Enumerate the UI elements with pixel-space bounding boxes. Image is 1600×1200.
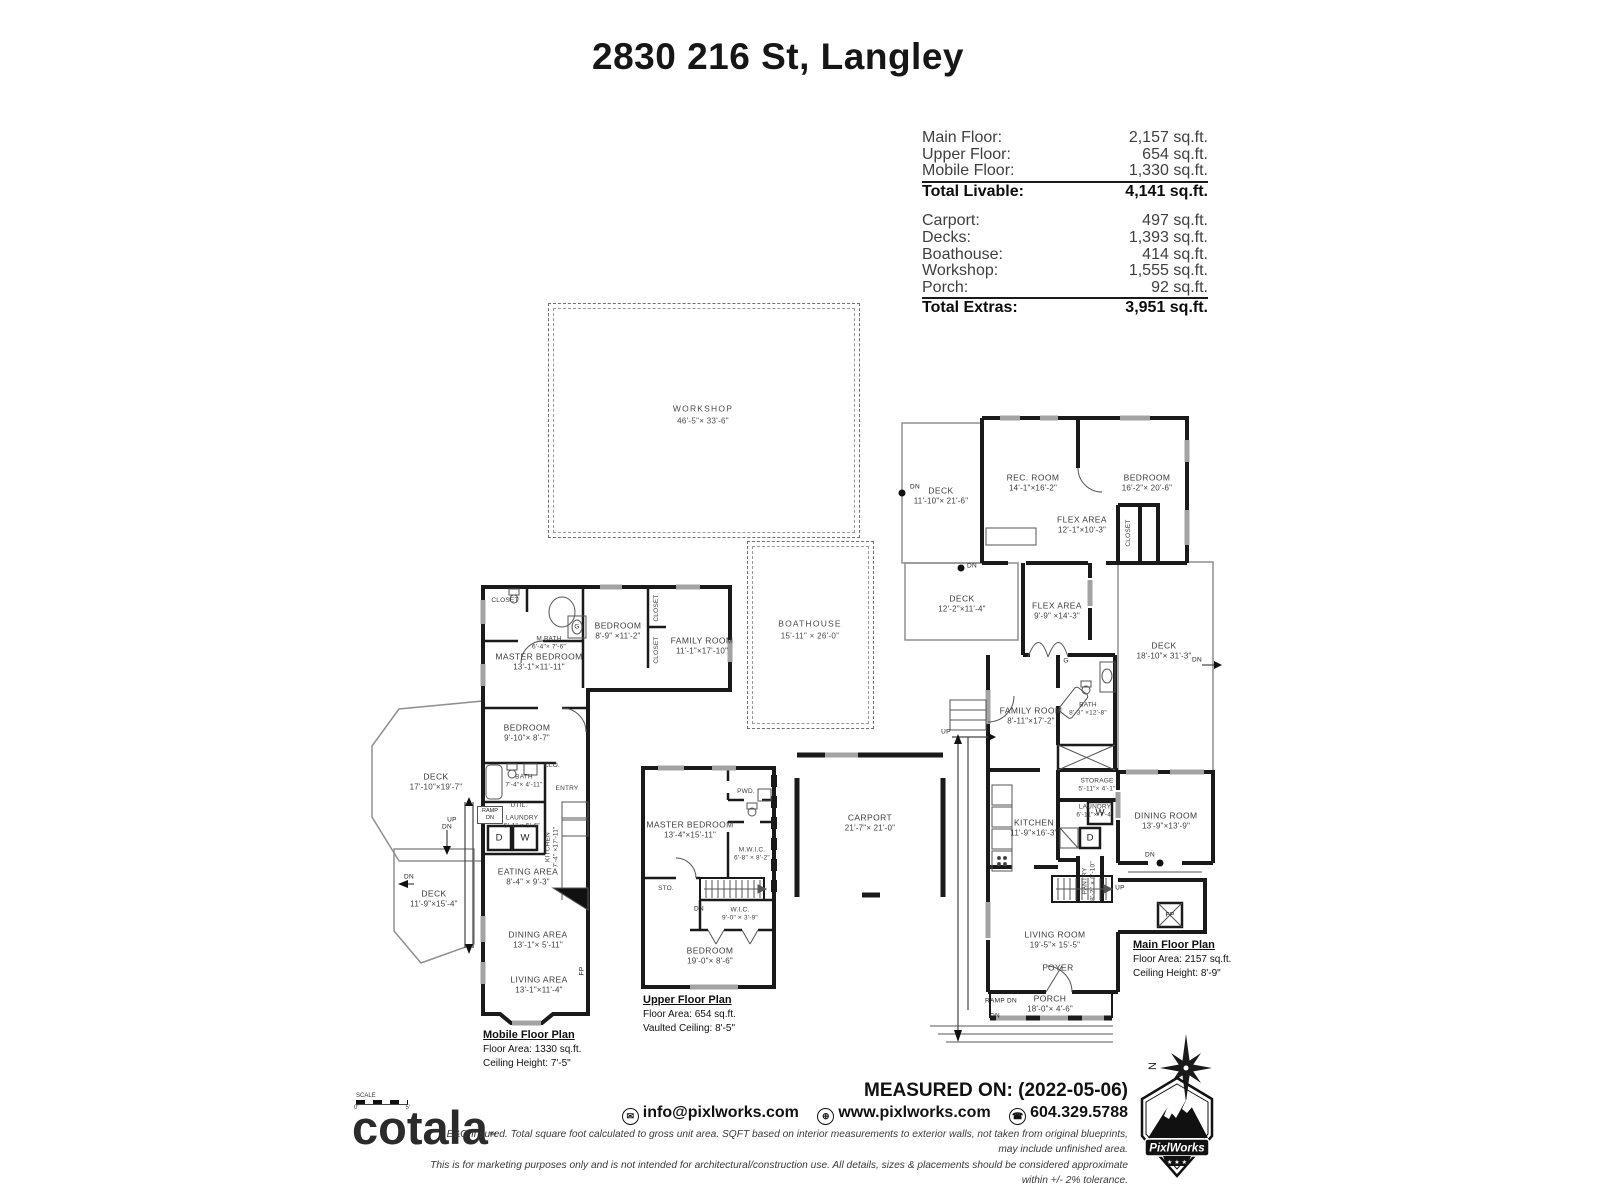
upper-plan-label: Upper Floor Plan Floor Area: 654 sq.ft. …: [643, 993, 736, 1036]
up-marker: UP: [1115, 885, 1125, 892]
room-closet: CLOSET: [653, 594, 661, 621]
boathouse-label: BOATHOUSE 15'-11" × 26'-0": [778, 618, 842, 643]
disclaimer-text: E&O Insured. Total square foot calculate…: [428, 1127, 1128, 1188]
floorplan-page: 2830 216 St, Langley Main Floor:2,157 sq…: [0, 0, 1600, 1200]
room-bath: BATH8'-3" ×12'-8": [1069, 702, 1107, 719]
room-wic: W.I.C.9'-0" × 3'-9": [722, 907, 758, 924]
room-living-area: LIVING AREA13'-1"×11'-4": [510, 974, 567, 995]
room-sto: STO.: [658, 885, 674, 893]
area-row-carport: Carport:497 sq.ft.: [922, 213, 1208, 230]
gas-marker: G: [574, 624, 579, 631]
area-row-porch: Porch:92 sq.ft.: [922, 280, 1208, 297]
area-summary-table: Main Floor:2,157 sq.ft. Upper Floor:654 …: [922, 130, 1208, 317]
dn-marker: DN: [694, 906, 704, 913]
mobile-plan-label: Mobile Floor Plan Floor Area: 1330 sq.ft…: [483, 1028, 581, 1071]
area-row-upper-floor: Upper Floor:654 sq.ft.: [922, 147, 1208, 164]
workshop-label: WORKSHOP 46'-5"× 33'-6": [673, 403, 733, 428]
ramp-dn-marker: RAMP DN: [985, 998, 1017, 1005]
phone-icon: ☎: [1009, 1108, 1026, 1125]
contact-website: www.pixlworks.com: [838, 1104, 990, 1121]
room-deck: DECK18'-10"× 31'-3": [1136, 640, 1191, 661]
area-row-main-floor: Main Floor:2,157 sq.ft.: [922, 130, 1208, 147]
room-master-bedroom: MASTER BEDROOM13'-4"×15'-11": [646, 819, 733, 840]
room-dining-area: DINING AREA13'-1"× 5'-11": [508, 929, 567, 950]
room-family-room: FAMILY ROOM11'-1"×17'-10": [671, 635, 734, 656]
globe-icon: ⊕: [817, 1108, 834, 1125]
room-pantry: PANTRY8'-2" × 6'-10": [1082, 861, 1099, 901]
contact-email: info@pixlworks.com: [643, 1104, 799, 1121]
room-util: UTIL.: [511, 802, 528, 810]
room-bedroom: BEDROOM8'-9" ×11'-2": [595, 620, 642, 641]
contact-phone: 604.329.5788: [1030, 1104, 1128, 1121]
measured-on-text: MEASURED ON: (2022-05-06): [864, 1080, 1128, 1102]
dn-marker: DN: [1192, 657, 1202, 664]
dn-marker: DN: [442, 824, 452, 831]
page-title: 2830 216 St, Langley: [178, 36, 1378, 78]
area-row-total-livable: Total Livable:4,141 sq.ft.: [922, 181, 1208, 201]
svg-text:★ ★ ★: ★ ★ ★: [1167, 1159, 1187, 1166]
dn-marker: DN: [910, 484, 920, 491]
room-closet: CLOSET: [1125, 519, 1133, 546]
email-icon: ✉: [622, 1108, 639, 1125]
room-deck: DECK12'-2"×11'-4": [938, 593, 985, 614]
room-kitchen: KITCHEN11'-9"×16'-3": [1010, 817, 1057, 838]
room-flex-area: FLEX AREA12'-1"×10'-3": [1057, 514, 1107, 535]
room-bath: BATH7'-4"× 4'-11": [505, 774, 542, 791]
area-row-workshop: Workshop:1,555 sq.ft.: [922, 263, 1208, 280]
washer-marker: W: [1096, 808, 1105, 819]
room-carport: CARPORT21'-7"× 21'-0": [845, 812, 895, 833]
area-row-total-extras: Total Extras:3,951 sq.ft.: [922, 297, 1208, 317]
room-laundry: LAUNDRY5'-1" × 5'-6": [504, 815, 540, 832]
room-closet: CLOSET: [491, 597, 518, 605]
main-plan-label: Main Floor Plan Floor Area: 2157 sq.ft. …: [1133, 938, 1231, 981]
room-deck: DECK17'-10"×19'-7": [410, 771, 463, 792]
room-storage: STORAGE5'-11"× 4'-1": [1078, 778, 1115, 795]
room-closet: CLOSET: [653, 636, 661, 663]
area-row-mobile-floor: Mobile Floor:1,330 sq.ft.: [922, 163, 1208, 180]
room-master-bedroom: MASTER BEDROOM13'-1"×11'-11": [495, 651, 582, 672]
room-deck: DECK11'-10"× 21'-6": [914, 485, 969, 506]
dryer-marker: D: [1087, 833, 1094, 844]
room-entry: ENTRY: [556, 785, 579, 793]
gas-marker: G: [1063, 658, 1068, 665]
ramp-dn-marker: RAMP DN: [477, 806, 503, 824]
dryer-marker: D: [496, 833, 503, 844]
room-kitchen: KITCHEN7'-4" ×17'-11": [545, 826, 562, 867]
room-porch: PORCH18'-0"× 4'-6": [1027, 993, 1073, 1014]
room-pwd: PWD.: [737, 788, 755, 796]
area-row-boathouse: Boathouse:414 sq.ft.: [922, 247, 1208, 264]
area-row-decks: Decks:1,393 sq.ft.: [922, 230, 1208, 247]
room-bedroom: BEDROOM16'-2"× 20'-6": [1122, 472, 1172, 493]
room-clo: CLO.: [544, 762, 560, 770]
room-deck: DECK11'-9"×15'-4": [410, 888, 457, 909]
room-mwic: M.W.I.C.6'-8" × 8'-2": [734, 847, 770, 864]
pixlworks-logo-text: PixlWorks: [1149, 1143, 1204, 1155]
room-bedroom: BEDROOM9'-10"× 8'-7": [504, 722, 551, 743]
dn-marker: DN: [967, 563, 977, 570]
dn-marker: DN: [990, 1013, 1000, 1020]
room-mbath: M.BATH6'-4"× 7'-6": [532, 636, 566, 653]
contact-line: ✉info@pixlworks.com ⊕www.pixlworks.com ☎…: [622, 1104, 1128, 1125]
room-rec-room: REC. ROOM14'-1"×16'-2": [1007, 472, 1060, 493]
room-flex-area: FLEX AREA9'-9" ×14'-3": [1032, 600, 1082, 621]
room-foyer: FOYER: [1042, 962, 1073, 973]
room-eating-area: EATING AREA8'-4" × 9'-3": [498, 866, 558, 887]
fireplace-marker: FP: [579, 967, 586, 976]
room-bedroom: BEDROOM19'-0"× 8'-6": [687, 945, 734, 966]
washer-marker: W: [521, 833, 530, 844]
pixlworks-logo: PixlWorks ★ ★ ★: [1138, 1076, 1216, 1178]
up-marker: UP: [941, 729, 951, 736]
room-family-room: FAMILY ROOM8'-11"×17'-2": [1000, 705, 1063, 726]
dn-marker: DN: [404, 874, 414, 881]
compass-north-label: N: [1147, 1062, 1159, 1070]
fireplace-marker: FP: [1166, 912, 1175, 919]
dn-marker: DN: [1145, 852, 1155, 859]
room-dining-room: DINING ROOM13'-9"×13'-9": [1135, 810, 1198, 831]
up-marker: UP: [447, 817, 457, 824]
room-living-room: LIVING ROOM19'-5"× 15'-5": [1024, 929, 1085, 950]
